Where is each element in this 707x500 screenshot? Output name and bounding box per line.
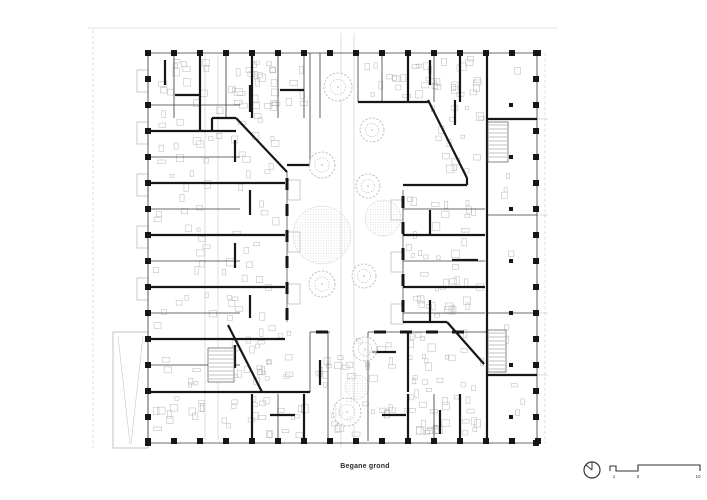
furniture-item <box>265 377 269 380</box>
furniture-item <box>471 386 475 391</box>
furniture-item <box>278 334 282 338</box>
furniture-item <box>412 65 419 69</box>
furniture-item <box>444 279 449 286</box>
furniture-item <box>267 62 272 66</box>
furniture-item <box>227 258 235 266</box>
furniture-item <box>372 410 375 414</box>
furniture-item <box>450 279 457 284</box>
furniture-item <box>413 376 417 380</box>
page: { "meta": { "caption": "Begane grond" },… <box>0 0 707 500</box>
column-marker <box>509 438 515 444</box>
furniture-item <box>504 188 507 192</box>
furniture-item <box>282 430 289 433</box>
furniture-item <box>416 428 423 434</box>
column-marker <box>533 232 539 238</box>
column-marker <box>457 438 463 444</box>
column-marker <box>197 50 203 56</box>
furniture-item <box>271 140 279 146</box>
column-marker <box>509 50 515 56</box>
furniture-item <box>461 382 465 387</box>
furniture-item <box>463 430 468 435</box>
plan-caption: Begane grond <box>340 463 389 470</box>
furniture-item <box>371 92 374 96</box>
furniture-item <box>465 106 468 109</box>
furniture-item <box>290 80 298 85</box>
furniture-item <box>455 277 460 284</box>
furniture-item <box>268 432 272 438</box>
furniture-item <box>171 404 178 411</box>
ground-dotted-circle <box>293 206 351 264</box>
furniture-item <box>421 273 429 277</box>
furniture-item <box>246 262 252 268</box>
tree-trunk <box>363 275 365 277</box>
furniture-item <box>396 85 401 90</box>
column-marker <box>145 128 151 134</box>
furniture-item <box>254 71 258 79</box>
column-marker <box>223 438 229 444</box>
furniture-item <box>436 136 442 141</box>
furniture-item <box>403 94 411 97</box>
furniture-item <box>479 116 484 120</box>
furniture-item <box>387 75 392 79</box>
column-marker <box>509 207 513 211</box>
furniture-item <box>418 251 421 256</box>
column-marker <box>533 154 539 160</box>
column-marker <box>275 438 281 444</box>
wall-thick <box>447 322 484 364</box>
furniture-item <box>160 87 167 93</box>
furniture-item <box>153 407 159 414</box>
column-marker <box>145 50 151 56</box>
furniture-item <box>416 426 421 434</box>
furniture-item <box>277 408 284 412</box>
furniture-item <box>176 154 183 162</box>
furniture-item <box>238 92 245 96</box>
furniture-item <box>388 365 395 368</box>
furniture-item <box>442 402 449 410</box>
furniture-item <box>237 371 242 378</box>
furniture-item <box>271 80 277 87</box>
furniture-item <box>454 396 459 399</box>
furniture-item <box>231 405 236 409</box>
furniture-item <box>232 400 238 404</box>
furniture-item <box>461 229 469 233</box>
ramp-outline <box>113 332 148 448</box>
column-marker <box>249 50 255 56</box>
furniture-item <box>271 137 274 141</box>
furniture-item <box>419 402 426 407</box>
furniture-item <box>239 184 243 191</box>
furniture-item <box>468 56 474 61</box>
furniture-item <box>464 330 467 338</box>
furniture-item <box>466 200 469 205</box>
column-marker <box>353 438 359 444</box>
column-marker <box>145 336 151 342</box>
furniture-item <box>452 84 456 90</box>
scale-label-5: 5 <box>637 474 640 479</box>
column-marker <box>509 103 513 107</box>
furniture-item <box>466 303 469 309</box>
furniture-item <box>201 404 204 412</box>
scale-label-1: 1 <box>613 474 616 479</box>
column-marker <box>483 50 489 56</box>
ground-dotted-circle <box>365 200 401 236</box>
furniture-item <box>473 85 479 92</box>
annotations: Begane grond 1 5 10 <box>340 462 701 479</box>
furniture-item <box>181 62 186 67</box>
furniture-item <box>389 358 393 365</box>
column-marker <box>145 310 151 316</box>
furniture-item <box>466 60 473 66</box>
furniture-item <box>323 371 328 378</box>
furniture-item <box>234 100 242 104</box>
furniture-item <box>184 79 191 86</box>
north-arrow-icon <box>584 462 600 478</box>
column-marker <box>533 76 539 82</box>
furniture-item <box>192 413 198 419</box>
column-marker <box>301 438 307 444</box>
furniture-item <box>285 354 292 360</box>
furniture-item <box>365 64 370 70</box>
furniture-item <box>259 329 263 336</box>
furniture-item <box>256 277 262 283</box>
furniture-item <box>250 346 254 353</box>
furniture-item <box>177 119 183 125</box>
furniture-item <box>475 420 481 427</box>
balcony <box>288 180 300 200</box>
column-marker <box>533 414 539 420</box>
furniture-item <box>516 410 520 415</box>
furniture-item <box>287 331 291 335</box>
furniture-item <box>422 354 425 358</box>
furniture-item <box>472 209 476 216</box>
furniture-item <box>256 78 260 86</box>
furniture-item <box>462 420 469 423</box>
furniture-item <box>425 428 432 433</box>
tree-trunk <box>337 86 339 88</box>
column-marker <box>171 438 177 444</box>
furniture-item <box>425 359 428 363</box>
furniture-item <box>461 348 467 352</box>
furniture-item <box>162 111 166 118</box>
furniture-item <box>442 154 449 159</box>
furniture-item <box>201 90 208 96</box>
faint-line <box>118 336 130 444</box>
column-marker <box>145 362 151 368</box>
furniture-item <box>452 82 458 89</box>
furniture-item <box>199 237 206 242</box>
balcony <box>288 284 300 304</box>
furniture-item <box>197 228 200 231</box>
furniture-item <box>465 214 470 218</box>
column-marker <box>457 50 463 56</box>
column-marker <box>483 438 489 444</box>
furniture-item <box>216 107 223 113</box>
furniture-item <box>175 397 179 401</box>
furniture-item <box>427 427 431 430</box>
furniture-item <box>222 269 225 275</box>
scale-bar: 1 5 10 <box>610 465 701 479</box>
scale-bar-profile <box>610 465 700 471</box>
furniture-item <box>409 395 413 400</box>
column-marker <box>533 128 539 134</box>
furniture-item <box>183 67 190 72</box>
tree-trunk <box>321 164 323 166</box>
furniture-item <box>185 295 188 300</box>
floor-plan: Begane grond 1 5 10 <box>0 0 707 500</box>
furniture-item <box>265 170 270 173</box>
furniture-item <box>202 60 209 66</box>
furniture-item <box>437 256 440 260</box>
furniture-item <box>226 424 230 428</box>
furniture-item <box>203 245 210 249</box>
furniture-item <box>162 358 169 362</box>
furniture-item <box>273 217 279 225</box>
tree-trunk <box>367 185 369 187</box>
column-marker <box>145 76 151 82</box>
furniture-item <box>515 67 521 74</box>
furniture-item <box>158 160 165 164</box>
north-arrow-hand-nw <box>586 465 592 470</box>
column-marker <box>197 438 203 444</box>
column-marker <box>145 258 151 264</box>
furniture-item <box>269 326 275 331</box>
furniture-item <box>222 418 227 423</box>
furniture-item <box>228 316 233 321</box>
furniture-item <box>258 415 266 419</box>
column-marker <box>327 50 333 56</box>
furniture-item <box>444 201 447 208</box>
furniture-item <box>431 202 439 206</box>
furniture-item <box>442 398 447 405</box>
column-marker <box>533 206 539 212</box>
column-marker <box>405 438 411 444</box>
furniture-item <box>411 253 414 257</box>
furniture-item <box>159 123 166 127</box>
furniture-item <box>216 133 222 138</box>
furniture-item <box>188 378 193 384</box>
furniture-item <box>424 255 428 259</box>
column-marker <box>145 414 151 420</box>
furniture-item <box>521 399 524 405</box>
furniture-item <box>154 427 162 430</box>
column-marker <box>379 438 385 444</box>
column-marker <box>145 154 151 160</box>
furniture-item <box>441 58 446 65</box>
column-marker <box>145 440 151 446</box>
furniture-item <box>472 418 477 425</box>
furniture-item <box>447 165 455 173</box>
furniture-item <box>452 264 458 269</box>
stair-block <box>488 330 506 372</box>
furniture-item <box>506 173 509 178</box>
tree-trunk <box>364 348 366 350</box>
furniture-item <box>246 171 250 178</box>
furniture-item <box>164 367 171 373</box>
furniture-item <box>416 90 423 98</box>
furniture-item <box>200 261 205 267</box>
column-marker <box>145 206 151 212</box>
furniture-item <box>261 211 268 215</box>
furniture-item <box>286 98 292 105</box>
furniture-item <box>256 344 260 348</box>
furniture-item <box>463 297 470 305</box>
furniture-item <box>461 135 465 138</box>
column-marker <box>145 232 151 238</box>
furniture-item <box>415 390 419 398</box>
furniture-item <box>186 225 192 232</box>
furniture-item <box>437 378 443 383</box>
furniture-item <box>442 420 450 426</box>
furniture-item <box>338 356 343 360</box>
furniture-item <box>299 66 303 74</box>
furniture-item <box>386 343 391 347</box>
furniture-item <box>448 355 455 360</box>
column-marker <box>509 155 513 159</box>
stair-block <box>488 122 508 162</box>
furniture-item <box>209 311 216 317</box>
furniture-item <box>154 323 161 329</box>
furniture-item <box>369 375 377 382</box>
column-marker <box>533 102 539 108</box>
furniture-item <box>176 300 182 305</box>
furniture-item <box>298 406 301 412</box>
furniture-item <box>504 325 509 330</box>
furniture-item <box>294 414 299 418</box>
column-marker <box>171 50 177 56</box>
furniture-item <box>260 313 265 320</box>
furniture-item <box>253 243 259 246</box>
furniture-item <box>462 239 466 246</box>
tree-trunk <box>321 283 323 285</box>
furniture-item <box>158 407 165 414</box>
furniture-item <box>242 275 247 281</box>
furniture-item <box>467 409 474 413</box>
furniture-item <box>209 137 213 141</box>
furniture-item <box>154 217 161 221</box>
furniture-item <box>265 103 272 108</box>
column-marker <box>509 311 513 315</box>
balcony <box>391 252 403 272</box>
balcony <box>391 304 403 324</box>
furniture-item <box>412 378 415 384</box>
column-marker <box>379 50 385 56</box>
column-marker <box>533 440 539 446</box>
furniture-item <box>410 333 414 339</box>
column-marker <box>509 415 513 419</box>
column-marker <box>509 363 513 367</box>
scale-label-10: 10 <box>695 474 701 479</box>
furniture-item <box>511 384 517 387</box>
stair-block <box>208 348 234 382</box>
ramp <box>113 332 148 448</box>
column-marker <box>431 50 437 56</box>
furniture-item <box>434 314 439 317</box>
column-marker <box>145 284 151 290</box>
furniture-item <box>296 433 302 438</box>
furniture-item <box>422 380 428 384</box>
furniture-item <box>271 89 278 96</box>
furniture-item <box>473 427 477 431</box>
column-marker <box>533 336 539 342</box>
furniture-item <box>236 306 243 311</box>
furniture-item <box>153 268 158 273</box>
furniture-item <box>174 59 180 63</box>
furniture-item <box>244 247 249 253</box>
furniture-item <box>235 88 243 95</box>
column-marker <box>223 50 229 56</box>
tree-trunk <box>346 411 348 413</box>
column-marker <box>533 258 539 264</box>
furniture-item <box>428 344 436 352</box>
furniture-item <box>502 192 507 198</box>
furniture-item <box>197 250 204 256</box>
furniture-item <box>204 158 209 163</box>
furniture-item <box>205 293 208 297</box>
column-marker <box>431 438 437 444</box>
furniture-item <box>229 300 235 306</box>
furniture-item <box>264 398 270 404</box>
furniture-item <box>442 211 449 218</box>
column-marker <box>145 102 151 108</box>
furniture-item <box>270 103 277 111</box>
furniture-item <box>233 297 238 301</box>
furniture-item <box>374 63 377 68</box>
column-marker <box>533 284 539 290</box>
column-marker <box>327 438 333 444</box>
furniture-item <box>451 250 459 258</box>
furniture-item <box>326 364 331 368</box>
column-marker <box>533 180 539 186</box>
furniture-item <box>236 69 240 76</box>
furniture-item <box>401 75 406 82</box>
furniture-item <box>426 363 432 371</box>
furniture-item <box>426 388 431 391</box>
furniture-item <box>188 383 191 387</box>
furniture-item <box>407 244 412 250</box>
furniture-item <box>243 157 251 163</box>
column-marker <box>533 310 539 316</box>
furniture-item <box>184 183 188 191</box>
column-marker <box>533 50 539 56</box>
furniture-item <box>260 201 264 207</box>
furniture-item <box>421 83 429 88</box>
column-marker <box>275 50 281 56</box>
column-marker <box>353 50 359 56</box>
tree-trunk <box>371 129 373 131</box>
furniture-item <box>352 432 360 436</box>
furniture-item <box>180 194 184 201</box>
furniture-item <box>464 279 467 286</box>
furniture-item <box>362 402 368 406</box>
furniture-item <box>466 207 471 213</box>
furniture-item <box>324 383 327 388</box>
column-marker <box>145 180 151 186</box>
furniture-item <box>239 152 245 156</box>
column-marker <box>145 388 151 394</box>
wall-thick <box>236 118 287 172</box>
column-marker <box>533 362 539 368</box>
column-marker <box>301 50 307 56</box>
wall-thick <box>428 100 467 178</box>
furniture-item <box>421 420 425 427</box>
furniture-item <box>157 212 162 217</box>
furniture-item <box>195 266 198 274</box>
furniture-item <box>162 309 167 314</box>
furniture-item <box>167 410 171 418</box>
furniture-item <box>205 180 211 188</box>
furniture-item <box>258 341 265 344</box>
